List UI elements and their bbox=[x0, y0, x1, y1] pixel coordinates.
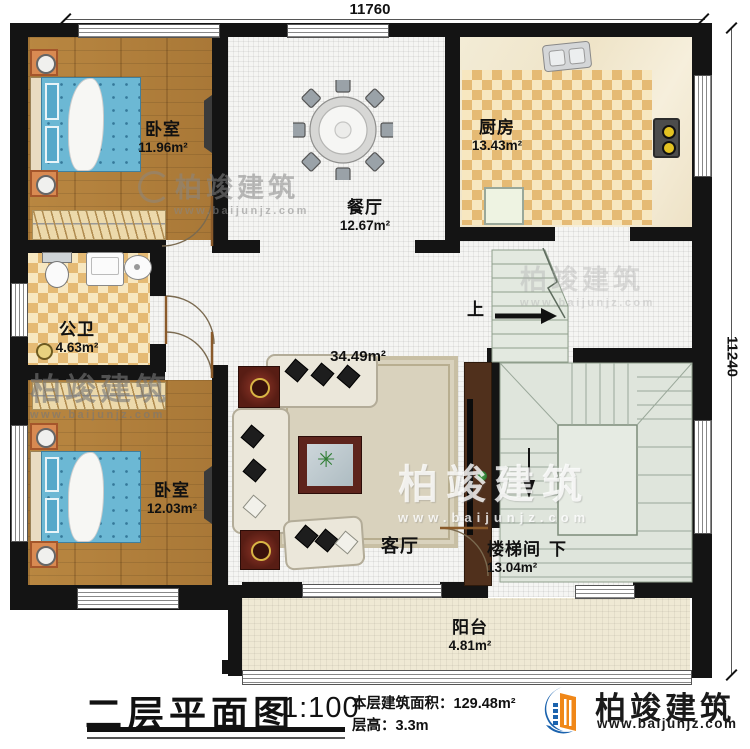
floorplan-canvas: ✳ bbox=[0, 0, 750, 749]
floor-height-line: 层高：3.3m bbox=[352, 714, 429, 735]
bedroom1-label: 卧室11.96m² bbox=[113, 120, 213, 155]
bedroom2-label: 卧室12.03m² bbox=[122, 481, 222, 516]
living-label: 客厅 bbox=[360, 536, 440, 557]
stairwell-label: 楼梯间下 13.04m² bbox=[487, 540, 605, 576]
down-label: 下 bbox=[549, 540, 567, 559]
title-underline-thick bbox=[87, 727, 345, 732]
dimension-top-line bbox=[65, 19, 705, 20]
scale-label: 1:100 bbox=[282, 692, 360, 725]
brand-logo-icon bbox=[536, 681, 592, 737]
title-underline-thin bbox=[87, 737, 345, 739]
kitchen-label: 厨房13.43m² bbox=[447, 118, 547, 153]
brand-url: www.baijunjz.com bbox=[597, 716, 738, 731]
stairs-up-label: 上 bbox=[464, 300, 488, 320]
dining-label: 餐厅12.67m² bbox=[315, 198, 415, 233]
dimension-right: 11240 bbox=[724, 317, 741, 397]
balcony-label: 阳台4.81m² bbox=[420, 618, 520, 653]
floor-area-line: 本层建筑面积：129.48m² bbox=[352, 692, 516, 713]
dimension-top: 11760 bbox=[330, 1, 410, 18]
living-area-label: 34.49m² bbox=[308, 348, 408, 365]
bathroom-label: 公卫4.63m² bbox=[27, 320, 127, 355]
